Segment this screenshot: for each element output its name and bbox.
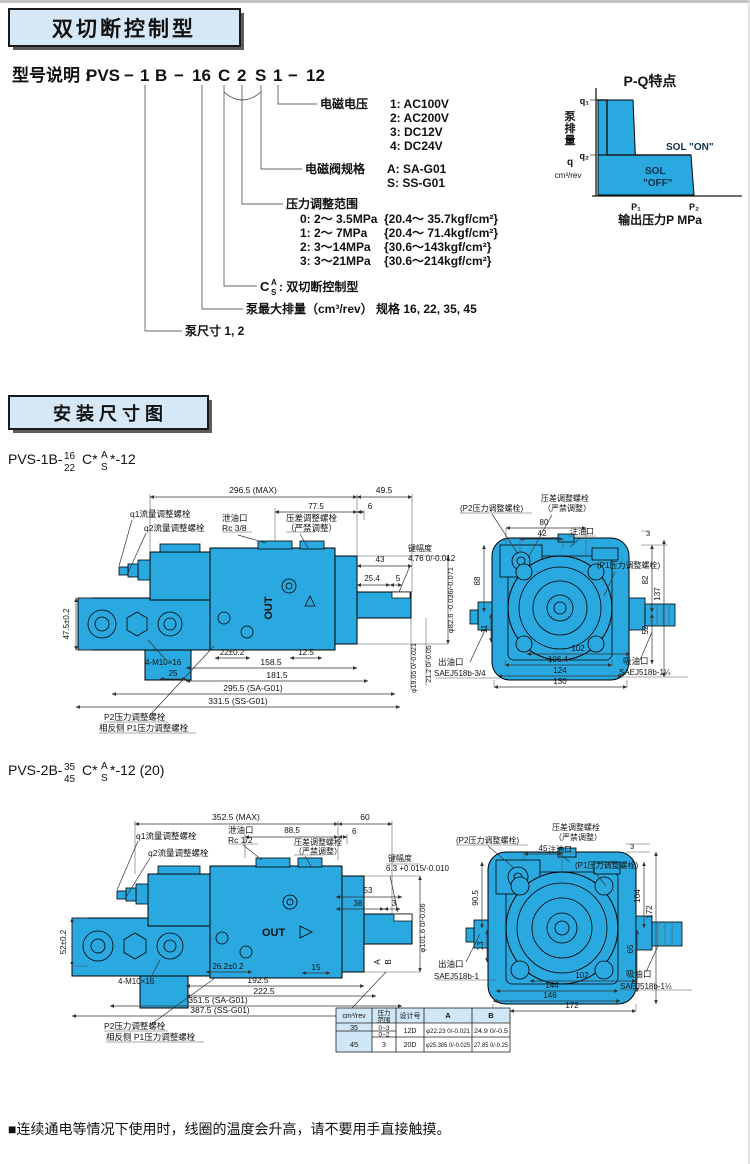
pq-xlabel: 输出压力P MPa [618, 212, 702, 227]
sub1-den: 22 [64, 463, 76, 474]
code-seg-s: S [255, 66, 266, 85]
pq-ylabel-q: q [567, 157, 573, 168]
code-seg-pvs: PVS [86, 66, 120, 85]
pq-ylabel: 泵排量 [565, 110, 576, 147]
inlet-port-spec: SAEJ518b-1¼ [619, 668, 671, 677]
footer-caution-note: ■连续通电等情况下使用时，线圈的温度会升高，请不要用手直接触摸。 [8, 1121, 450, 1137]
dim-137: 137 [653, 587, 662, 601]
sub2-c: C* [82, 762, 98, 778]
drain-port-label: 泄油口 [222, 513, 248, 523]
drain-port-label-2: 泄油口 [228, 825, 254, 835]
displacement-note: 泵最大排量（cm³/rev） 规格 16, 22, 35, 45 [246, 301, 477, 316]
valve-label: 电磁阀规格 [305, 161, 366, 176]
pq-sol-off-label-2: "OFF" [643, 178, 673, 189]
dim2-104: 104 [633, 889, 642, 903]
dim-158-5: 158.5 [260, 657, 282, 667]
dim-11: 11 [480, 624, 489, 633]
pressure-kgf-3: {30.6～214kgf/cm²} [384, 254, 492, 268]
out-port-marking-2: OUT [262, 927, 286, 939]
outlet-port-spec-2: SAEJ518b-1 [434, 972, 479, 981]
dim-102: 102 [571, 644, 585, 653]
q1-adjust-label-2: q1流量调整螺栓 [136, 831, 197, 841]
rear-comp-warning: （严禁调整） [543, 503, 591, 513]
control-s: S [271, 288, 277, 297]
dim2-sa-g01-length: 351.5 (SA-G01) [188, 995, 248, 1005]
code-seg-dash2: − [174, 66, 184, 85]
pq-sol-on-label: SOL "ON" [666, 142, 714, 153]
sub2-num: 35 [64, 762, 76, 773]
key-width-label-2: 键幅度 [388, 853, 412, 863]
pressure-option-2: 2: 3～14MPa [300, 240, 371, 254]
dim-80: 80 [540, 518, 549, 527]
code-seg-volt: 1 [273, 66, 282, 85]
dim2-172-v: 172 [645, 905, 654, 919]
pq-p2-label: P₂ [689, 202, 699, 212]
code-seg-dash1: − [124, 66, 134, 85]
sub2-suffix: *-12 (20) [110, 762, 164, 778]
voltage-option-1: 1: AC100V [390, 97, 449, 111]
dim2-222-5: 222.5 [253, 986, 275, 996]
control-c: C [260, 279, 270, 294]
dim2-26-2: 26.2±0.2 [212, 962, 244, 971]
code-seg-design: 12 [306, 66, 325, 85]
pressure-kgf-1: {20.4～ 71.4kgf/cm²} [384, 226, 498, 240]
mounting-bolts-label-2: 4-M10×16 [118, 977, 155, 986]
dim-77-5: 77.5 [308, 502, 324, 511]
dim-5: 5 [396, 574, 401, 583]
valve-option-a: A: SA-G01 [387, 162, 447, 176]
table-cell-35: 35 [350, 1025, 358, 1032]
dim-25: 25 [169, 669, 178, 678]
fill-port-label-2: 注油口 [548, 844, 572, 854]
dim2-60: 60 [360, 812, 370, 822]
dim2-52: 52±0.2 [59, 929, 68, 954]
rear2-p2-label: (P2压力调整螺栓) [456, 835, 519, 845]
drain-port-size: Rc 3/8 [222, 523, 247, 533]
dim2-38: 38 [354, 899, 363, 908]
table-header-pressure-1: 压力 [378, 1008, 391, 1017]
code-seg-disp: 16 [192, 66, 211, 85]
pq-p1-label: P₁ [631, 202, 641, 212]
dim2-90-5: 90.5 [471, 890, 480, 906]
table-cell-12d: 12D [404, 1028, 417, 1035]
inlet-port-spec-2: SAEJ518b-1¼ [620, 982, 672, 991]
q2-adjust-label-2: q2流量调整螺栓 [148, 848, 209, 858]
rear2-comp-label: 压差调整螺栓 [552, 822, 600, 832]
model-prefix: 型号说明 : [12, 65, 90, 85]
pressure-kgf-2: {30.6～143kgf/cm²} [384, 240, 492, 254]
p1-adjust-label-2: 相反侧 P1压力调整螺栓 [106, 1032, 196, 1042]
dim-106-4: 106.4 [548, 655, 569, 664]
dim-sa-g01-length: 295.5 (SA-G01) [223, 683, 283, 693]
dim2-pilot-dia: φ101.6 0/-0.06 [418, 903, 427, 952]
out-port-marking: OUT [263, 596, 275, 620]
dim-shaft-dia: φ19.05 0/-0.021 [411, 643, 418, 693]
pump-size-note: 泵尺寸 1, 2 [185, 323, 245, 338]
comp-bolt-label-2: 压差调整螺栓 [294, 837, 342, 847]
dim2-15: 15 [312, 963, 321, 972]
code-seg-b: B [155, 66, 167, 85]
dim2-88-5: 88.5 [284, 826, 300, 835]
dim2-rear-3: 3 [630, 842, 634, 851]
rear2-comp-warning: （严禁调整） [554, 832, 602, 842]
outlet-port-label-2: 出油口 [438, 959, 464, 969]
sub1-num: 16 [64, 451, 76, 462]
dim2-144: 144 [545, 981, 559, 990]
table-header-displacement: cm³/rev [342, 1013, 366, 1020]
outlet-port-label: 出油口 [438, 657, 464, 667]
sub1-a: A [101, 450, 108, 461]
table-header-b: B [488, 1011, 494, 1020]
dim2-ss-g01-length: 387.5 (SS-G01) [190, 1005, 250, 1015]
code-seg-c: C [218, 66, 230, 85]
dim-overall-length: 296.5 (MAX) [229, 485, 277, 495]
table-header-a: A [445, 1011, 451, 1020]
comp-bolt-label: 压差调整螺栓 [286, 513, 338, 523]
code-seg-press: 2 [237, 66, 246, 85]
dim-43: 43 [376, 555, 385, 564]
dim2-53: 53 [364, 886, 373, 895]
dim-181-5: 181.5 [266, 670, 288, 680]
table-cell-b-20d: 27.85 0/-0.25 [474, 1043, 509, 1049]
page-title: 双切断控制型 [52, 17, 196, 41]
page-canvas: 双切断控制型 型号说明 : PVS − 1 B − 16 C 2 S 1 − 1… [0, 0, 750, 1164]
rear-p2-label: (P2压力调整螺栓) [460, 503, 523, 513]
dim-3: 3 [646, 529, 650, 538]
comp-bolt-warning: （严禁调整） [286, 523, 337, 533]
table-header-design: 设计号 [400, 1011, 421, 1020]
drain-port-size-2: Rc 1/2 [228, 835, 253, 845]
rear2-p1-label: (P1压力调整螺栓) [575, 860, 638, 870]
dim-12-5: 12.5 [298, 648, 314, 657]
dim-42: 42 [538, 529, 547, 538]
dim2-146: 146 [543, 991, 557, 1000]
voltage-option-3: 3: DC12V [390, 125, 443, 139]
dim-124: 124 [553, 666, 567, 675]
dim2-overall-length: 352.5 (MAX) [212, 812, 260, 822]
dim2-6: 6 [352, 827, 357, 836]
voltage-option-2: 2: AC200V [390, 111, 449, 125]
p2-adjust-label: P2压力调整螺栓 [104, 712, 166, 722]
section-header-dimensions: 安 装 尺 寸 图 [9, 396, 212, 433]
shaft-dim-a-label: A [373, 959, 382, 965]
section-header-control-type: 双切断控制型 [9, 9, 244, 50]
dim-82: 82 [641, 575, 650, 584]
pq-q2-label: q₂ [580, 151, 590, 161]
control-a: A [271, 278, 277, 287]
dim2-172-h: 172 [565, 1001, 579, 1010]
dim-21-2: 21.2 0/-0.05 [426, 645, 433, 682]
inlet-port-label-2: 吸油口 [626, 969, 652, 979]
dim-47-5: 47.5±0.2 [62, 608, 71, 640]
table-cell-a-12d: φ22.23 0/-0.021 [426, 1029, 471, 1035]
table-cell-b-12d: 24.9 0/-0.5 [474, 1029, 509, 1035]
rear-comp-label: 压差调整螺栓 [541, 493, 589, 503]
dim-25-4: 25.4 [364, 574, 380, 583]
mounting-bolts-label: 4-M10×16 [145, 658, 182, 667]
control-text: : 双切断控制型 [279, 279, 358, 294]
dim2-102: 102 [575, 971, 589, 980]
pq-sol-off-label-1: SOL [645, 166, 666, 177]
dim2-192-5: 192.5 [247, 975, 269, 985]
dim2-65: 65 [626, 944, 635, 953]
dim-pilot-dia: φ82.6 -0.036/-0.071 [446, 567, 455, 633]
sub1-c: C* [82, 451, 98, 467]
pq-q1-label: q₁ [580, 96, 589, 106]
pressure-option-1: 1: 2～ 7MPa [300, 226, 368, 240]
dimensions-title: 安 装 尺 寸 图 [53, 403, 163, 424]
voltage-label: 电磁电压 [320, 96, 368, 111]
shaft-dim-b-label: B [384, 959, 393, 964]
catalog-page: 双切断控制型 型号说明 : PVS − 1 B − 16 C 2 S 1 − 1… [0, 0, 750, 1164]
sub2-prefix: PVS-2B- [8, 762, 63, 778]
key-width-value: 4.76 0/-0.012 [408, 554, 456, 563]
table-cell-45: 45 [350, 1040, 358, 1049]
sub2-a: A [101, 761, 108, 772]
outlet-port-spec: SAEJ518b-3/4 [434, 669, 486, 678]
dim2-13: 13 [476, 941, 485, 950]
voltage-option-4: 4: DC24V [390, 139, 443, 153]
key-width-value-2: 6.3 +0.015/-0.010 [386, 864, 449, 873]
pq-title: P-Q特点 [624, 73, 677, 89]
code-seg-size: 1 [140, 66, 149, 85]
pressure-kgf-0: {20.4～ 35.7kgf/cm²} [384, 212, 498, 226]
dim-22: 22±0.2 [220, 648, 245, 657]
table-cell-20d: 20D [404, 1042, 417, 1049]
fill-port-label: 注油口 [570, 526, 594, 536]
q1-adjust-label: q1流量调整螺栓 [130, 509, 191, 519]
sub2-s: S [101, 773, 108, 784]
dim-52: 52 [641, 625, 650, 634]
code-seg-dash3: − [288, 66, 298, 85]
sub2-den: 45 [64, 774, 76, 785]
inlet-port-label: 吸油口 [623, 656, 649, 666]
dim-130: 130 [553, 677, 567, 686]
dim-49-5: 49.5 [376, 485, 393, 495]
comp-bolt-warning-2: （严禁调整） [294, 846, 342, 856]
dim2-3: 3 [392, 899, 397, 908]
table-cell-a-20d: φ25.385 0/-0.025 [426, 1043, 471, 1049]
sub1-s: S [101, 462, 108, 473]
dim-6: 6 [368, 502, 373, 511]
dim-88: 88 [473, 576, 482, 585]
table-cell-3: 3 [382, 1042, 386, 1049]
table-cell-0-2: 0~2 [378, 1032, 389, 1039]
pressure-label: 压力调整范围 [286, 196, 358, 211]
pressure-option-3: 3: 3～21MPa [300, 254, 371, 268]
pq-ylabel-unit: cm³/rev [555, 171, 582, 180]
sub1-suffix: *-12 [110, 451, 136, 467]
p2-adjust-label-2: P2压力调整螺栓 [104, 1021, 166, 1031]
key-width-label: 键幅度 [408, 543, 432, 553]
pressure-option-0: 0: 2～ 3.5MPa [300, 212, 378, 226]
sub1-prefix: PVS-1B- [8, 451, 63, 467]
dim-ss-g01-length: 331.5 (SS-G01) [208, 696, 268, 706]
rear-p1-label: (P1压力调整螺栓) [597, 560, 660, 570]
table-header-pressure-2: 范围 [378, 1015, 391, 1024]
valve-option-s: S: SS-G01 [387, 176, 445, 190]
p1-adjust-label: 相反侧 P1压力调整螺栓 [99, 723, 189, 733]
q2-adjust-label: q2流量调整螺栓 [144, 523, 205, 533]
dim2-45: 45 [539, 844, 548, 853]
